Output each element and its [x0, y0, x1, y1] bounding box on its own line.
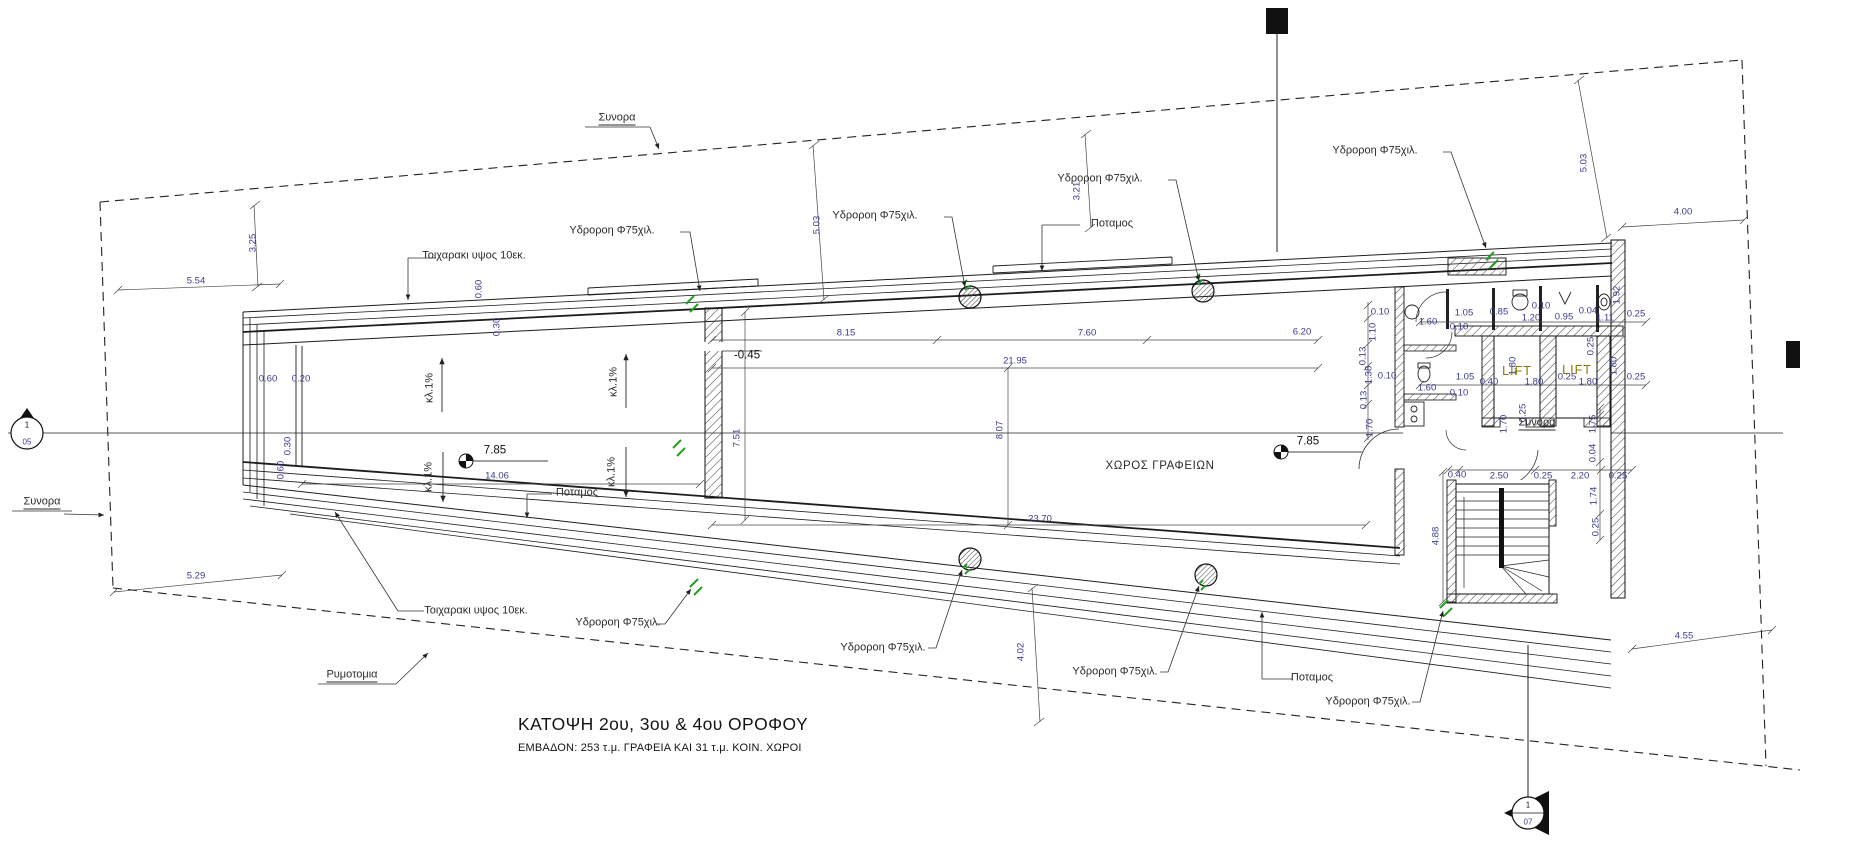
note-label: Ποταμος: [1291, 673, 1333, 684]
section-marker-2-sheet: 07: [1524, 818, 1533, 827]
dimension-label: 2.20: [1571, 471, 1590, 481]
service-core: [1359, 240, 1625, 603]
level-label: 7.85: [1297, 436, 1319, 448]
dimension-label: 8.15: [837, 328, 856, 338]
dimension-label: 0.10: [1450, 388, 1469, 398]
dimension-label: 0.60: [474, 280, 484, 299]
dimension-label: 0.13: [1358, 347, 1368, 366]
dimension-label: 4.88: [1431, 527, 1441, 546]
dimension-label: 8.07: [995, 421, 1005, 440]
dimension-label: 0.10: [1371, 307, 1390, 317]
dimension-label: 1.05: [1455, 308, 1474, 318]
dimension-label: 0.25: [1586, 337, 1596, 356]
dimension-label: 4.55: [1675, 631, 1694, 641]
note-label: Υδροροη Φ75χιλ.: [1325, 697, 1410, 708]
section-marker-1-sheet: 05: [23, 438, 32, 447]
dimension-label: 1.38: [1364, 366, 1374, 385]
dimension-label: 1.80: [1609, 357, 1619, 376]
dimension-label: 0.13: [1359, 391, 1369, 410]
dimension-label: 5.03: [812, 216, 822, 235]
dimension-label: 5.03: [1579, 154, 1589, 173]
dimension-label: 6.20: [1293, 327, 1312, 337]
section-marker-symbols: [10, 408, 1549, 835]
reference-bar-top: [1266, 8, 1288, 34]
dimension-label: 2.50: [1490, 471, 1509, 481]
dimension-label: 0.60: [276, 461, 286, 480]
title-block: ΚΑΤΟΨΗ 2ου, 3ου & 4ου ΟΡΟΦΟΥ ΕΜΒΑΔΟΝ: 25…: [518, 714, 808, 754]
level-label: 7.85: [484, 445, 506, 457]
dimension-label: 0.60: [259, 374, 278, 384]
dimension-label: 1.60: [1419, 317, 1438, 327]
dimension-label: 1.60: [1418, 383, 1437, 393]
note-label: Υδροροη Φ75χιλ.: [1072, 667, 1157, 678]
dimension-label: 1.80: [1579, 377, 1598, 387]
note-label: Τοιχαρακι υψος 10εκ.: [422, 251, 526, 262]
dimension-label: 1.70: [1499, 415, 1509, 434]
dimension-label: 0.30: [283, 437, 293, 456]
note-label: Τοιχαρακι υψος 10εκ.: [424, 606, 528, 617]
note-label: Ποταμος: [556, 488, 598, 499]
office-room-label: ΧΩΡΟΣ ΓΡΑΦΕΙΩΝ: [1105, 460, 1214, 472]
note-label: κλ.1%: [424, 462, 435, 492]
floor-plan-sheet: 5.543.255.290.600.200.600.300.300.6014.0…: [0, 0, 1861, 861]
dimension-label: 0.25: [1627, 372, 1646, 382]
dimension-label: 0.25: [1591, 518, 1601, 537]
note-label: Υδροροη Φ75χιλ.: [1057, 174, 1142, 185]
note-label: Υδροροη Φ75χιλ.: [840, 643, 925, 654]
dimension-label: 0.85: [1490, 307, 1509, 317]
dimension-label: 1.05: [1456, 372, 1475, 382]
dimension-label: 0.40: [1480, 377, 1499, 387]
dimension-label: 7.60: [1078, 328, 1097, 338]
dimension-label: 0.10: [1532, 301, 1551, 311]
note-label: κλ.1%: [607, 457, 618, 487]
dimension-label: 0.30: [492, 318, 502, 337]
dividing-wall: [704, 308, 762, 498]
dimension-label: 0.10: [1378, 371, 1397, 381]
drawing-subtitle: ΕΜΒΑΔΟΝ: 253 τ.μ. ΓΡΑΦΕΙΑ ΚΑΙ 31 τ.μ. ΚΟ…: [518, 742, 808, 754]
dimension-label: 0.04: [1579, 306, 1598, 316]
dimension-label: 1.20: [1522, 313, 1541, 323]
dimension-label: 14.06: [485, 471, 509, 481]
drawing-title: ΚΑΤΟΨΗ 2ου, 3ου & 4ου ΟΡΟΦΟΥ: [518, 714, 808, 735]
dimension-label: 1.70: [1365, 419, 1375, 438]
lift-a-label: LIFT: [1502, 364, 1532, 378]
dimension-label: 1.10: [1368, 323, 1378, 342]
dimension-label: 0.25: [1534, 471, 1553, 481]
dimension-label: 5.29: [187, 571, 206, 581]
reference-bar-right: [1786, 341, 1800, 368]
slope-arrows: [442, 354, 626, 502]
note-label: κλ.1%: [425, 373, 436, 403]
dimension-label: 1.11: [1596, 313, 1614, 323]
note-label: Υδροροη Φ75χιλ.: [832, 211, 917, 222]
note-label: Ρυμοτομια: [326, 670, 377, 683]
note-label: Υδροροη Φ75χιλ.: [1332, 146, 1417, 157]
staircase: [1447, 480, 1557, 603]
dimension-label: 1.80: [1525, 377, 1544, 387]
section-marker-1-number: 1: [25, 421, 29, 430]
dimension-label: 23.70: [1028, 514, 1052, 524]
leader-lines: [12, 127, 1486, 702]
dimension-label: 0.25: [1609, 471, 1628, 481]
dimension-label: 0.20: [292, 374, 311, 384]
dimension-label: 3.21: [1072, 182, 1082, 201]
note-label: Συνορα: [598, 113, 635, 126]
note-label: Υδροροη Φ75χιλ.: [569, 226, 654, 237]
section-marker-2-number: 1: [1526, 801, 1530, 810]
dimension-label: 0.10: [1450, 322, 1469, 332]
note-label: Υδροροη Φ75χιλ.: [575, 618, 660, 629]
dimension-label: 4.02: [1016, 643, 1026, 662]
dimension-label: 0.40: [1448, 470, 1467, 480]
note-label: Ποταμος: [1091, 219, 1133, 230]
note-label: Συνορα: [1518, 418, 1555, 431]
dimension-label: 1.92: [1612, 286, 1622, 305]
lift-b-label: LIFT: [1562, 363, 1592, 377]
floor-plan-drawing: [0, 0, 1861, 861]
dimension-label: 7.51: [732, 429, 742, 448]
note-label: Συνορα: [23, 497, 60, 510]
dimension-label: 4.00: [1674, 207, 1693, 217]
dimension-label: 5.54: [187, 276, 206, 286]
dimension-label: 0.95: [1555, 312, 1574, 322]
dimension-label: 0.04: [1588, 444, 1598, 463]
dimension-label: 21.95: [1003, 356, 1027, 366]
dimension-label: 1.75: [1588, 415, 1598, 434]
dimension-label: 0.25: [1627, 309, 1646, 319]
dimension-label: 3.25: [248, 234, 258, 253]
note-label: κλ.1%: [609, 367, 620, 397]
dimension-label: 1.74: [1589, 487, 1599, 506]
level-label: -0.45: [734, 350, 760, 362]
